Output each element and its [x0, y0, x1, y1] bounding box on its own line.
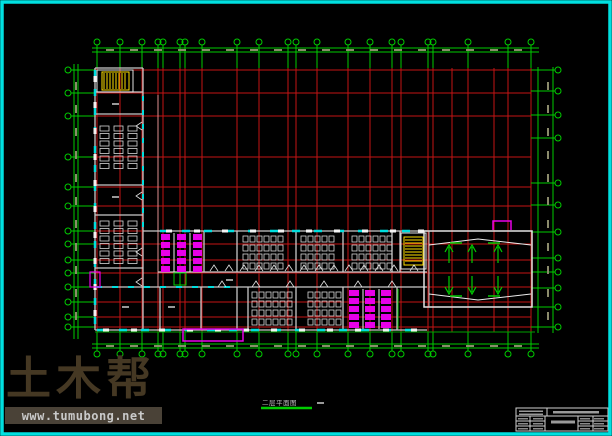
axis-bubble-top [139, 39, 145, 45]
title-block-text [594, 428, 604, 430]
dim-text-bottom [202, 345, 210, 347]
desk [100, 251, 109, 256]
dim-text-bottom [346, 345, 354, 347]
title-block-text [533, 418, 543, 420]
axis-bubble-bottom [285, 351, 291, 357]
desk [273, 292, 278, 298]
desk [271, 236, 276, 242]
desk [329, 310, 334, 316]
axis-bubble-bottom [199, 351, 205, 357]
dim-text-right [547, 197, 549, 205]
desk [359, 254, 364, 260]
desk [308, 310, 313, 316]
toilet-fixture [193, 234, 202, 240]
desk [100, 149, 109, 154]
stair-mid-frame [401, 233, 426, 269]
roof-ridge-bottom [429, 294, 531, 300]
dim-text-top [466, 49, 474, 51]
title-block-text [553, 411, 599, 414]
desk [259, 319, 264, 325]
desk [264, 254, 269, 260]
cad-drawing-preview: 二层平面图 土木帮 www.tumubong.net [0, 0, 612, 436]
desk [329, 319, 334, 325]
desk [271, 245, 276, 251]
axis-bubble-bottom [256, 351, 262, 357]
desk [128, 259, 137, 264]
axis-bubble-bottom [234, 351, 240, 357]
axis-bubble-top [256, 39, 262, 45]
dim-text-top [418, 49, 426, 51]
dim-text-left [75, 266, 77, 274]
toilet-fixture [193, 250, 202, 256]
dim-text-top [370, 49, 378, 51]
dim-text-left [75, 174, 77, 182]
desk [322, 236, 327, 242]
toilet-fixture [365, 290, 375, 296]
desk [301, 254, 306, 260]
toilet-fixture [161, 242, 170, 248]
desk [128, 141, 137, 146]
axis-bubble-top [367, 39, 373, 45]
desk [359, 236, 364, 242]
desk [322, 263, 327, 269]
watermark-brand: 土木帮 [6, 354, 156, 404]
desk [322, 310, 327, 316]
desk [373, 236, 378, 242]
axis-bubble-top [94, 39, 100, 45]
dim-text-bottom [418, 345, 426, 347]
title-block-text [594, 423, 604, 425]
axis-bubble-right [555, 255, 561, 261]
door-swing-marks [218, 281, 396, 287]
axis-bubble-right [555, 269, 561, 275]
desk [280, 319, 285, 325]
dim-text-top [298, 49, 306, 51]
dim-text-bottom [442, 345, 450, 347]
toilet-fixture [349, 322, 359, 328]
desk [100, 236, 109, 241]
desk [128, 221, 137, 226]
desk [308, 319, 313, 325]
toilet-fixture [161, 266, 170, 272]
toilet-fixture [161, 234, 170, 240]
title-block-text [580, 423, 590, 425]
desk [266, 319, 271, 325]
desk [329, 254, 334, 260]
desk [250, 236, 255, 242]
desk [264, 245, 269, 251]
desk [243, 236, 248, 242]
axis-bubble-top [314, 39, 320, 45]
desk [114, 149, 123, 154]
axis-bubble-top [199, 39, 205, 45]
axis-bubble-top [465, 39, 471, 45]
axis-bubble-left [65, 154, 71, 160]
axis-bubble-left [65, 314, 71, 320]
axis-bubble-right [555, 180, 561, 186]
axis-bubble-right [555, 135, 561, 141]
axis-bubble-right [555, 304, 561, 310]
desk [252, 292, 257, 298]
desk [322, 319, 327, 325]
axis-bubble-top [345, 39, 351, 45]
desk [308, 236, 313, 242]
dim-text-top [322, 49, 330, 51]
desk [128, 149, 137, 154]
dim-text-top [250, 49, 258, 51]
desk [100, 141, 109, 146]
dim-text-left [75, 82, 77, 90]
toilet-fixture [381, 290, 391, 296]
desk [322, 245, 327, 251]
desk [266, 310, 271, 316]
desk [250, 245, 255, 251]
axis-bubble-top [285, 39, 291, 45]
axis-bubble-bottom [528, 351, 534, 357]
desk [252, 310, 257, 316]
axis-bubble-right [555, 285, 561, 291]
dim-text-bottom [466, 345, 474, 347]
title-block-text [594, 418, 604, 420]
dim-text-right [547, 151, 549, 159]
toilet-fixture [349, 290, 359, 296]
axis-bubble-top [293, 39, 299, 45]
axis-bubble-top [234, 39, 240, 45]
axis-bubble-right [555, 229, 561, 235]
dim-text-left [75, 220, 77, 228]
axis-bubble-bottom [389, 351, 395, 357]
toilet-fixture [381, 322, 391, 328]
desk [128, 134, 137, 139]
plan-title-label: 二层平面图 [262, 399, 297, 407]
dim-text-bottom [394, 345, 402, 347]
axis-bubble-right [555, 67, 561, 73]
dim-text-right [547, 243, 549, 251]
desk [273, 310, 278, 316]
dim-text-top [154, 49, 162, 51]
desk [352, 236, 357, 242]
axis-bubble-top [505, 39, 511, 45]
desk [100, 221, 109, 226]
desk [259, 292, 264, 298]
dim-text-bottom [130, 345, 138, 347]
desk [128, 164, 137, 169]
dim-text-right [547, 174, 549, 182]
dim-text-top [490, 49, 498, 51]
room-label [112, 103, 119, 105]
axis-bubble-left [65, 257, 71, 263]
desk [264, 236, 269, 242]
desk [308, 245, 313, 251]
dim-text-bottom [250, 345, 258, 347]
axis-bubble-left [65, 184, 71, 190]
desk [336, 292, 341, 298]
desk [250, 263, 255, 269]
desk [128, 236, 137, 241]
axis-bubble-left [65, 299, 71, 305]
dim-text-bottom [154, 345, 162, 347]
toilet-fixture [365, 306, 375, 312]
dim-text-top [106, 49, 114, 51]
dim-text-left [75, 151, 77, 159]
axis-bubble-left [65, 241, 71, 247]
desk [114, 134, 123, 139]
axis-bubble-left [65, 284, 71, 290]
dim-text-left [75, 312, 77, 320]
desk [336, 319, 341, 325]
toilet-fixture [381, 314, 391, 320]
dim-text-top [130, 49, 138, 51]
desk [301, 245, 306, 251]
desk [280, 310, 285, 316]
toilet-fixture [177, 242, 186, 248]
desk [352, 245, 357, 251]
axis-bubble-bottom [367, 351, 373, 357]
dim-text-right [547, 266, 549, 274]
desk [387, 263, 392, 269]
dim-text-top [514, 49, 522, 51]
toilet-fixture [193, 258, 202, 264]
dim-text-right [547, 105, 549, 113]
room-label [112, 196, 119, 198]
toilet-fixture [365, 314, 375, 320]
desk [329, 236, 334, 242]
axis-bubble-bottom [345, 351, 351, 357]
desk [278, 245, 283, 251]
axis-bubble-left [65, 203, 71, 209]
title-block-text [518, 418, 528, 420]
desk [308, 263, 313, 269]
toilet-fixture [161, 258, 170, 264]
desk [114, 141, 123, 146]
dim-text-bottom [322, 345, 330, 347]
desk [271, 254, 276, 260]
axis-bubble-left [65, 270, 71, 276]
desk [278, 263, 283, 269]
desk [373, 254, 378, 260]
axis-bubble-bottom [398, 351, 404, 357]
desk [259, 310, 264, 316]
axis-bubble-right [555, 324, 561, 330]
dim-text-top [178, 49, 186, 51]
axis-bubble-top [117, 39, 123, 45]
toilet-fixture [177, 234, 186, 240]
desk [250, 254, 255, 260]
desk [380, 245, 385, 251]
desk [114, 251, 123, 256]
room-label [168, 306, 175, 308]
axis-bubble-bottom [465, 351, 471, 357]
toilet-fixture [177, 258, 186, 264]
desk [359, 245, 364, 251]
desk [114, 221, 123, 226]
dim-text-left [75, 128, 77, 136]
title-block-text [533, 423, 543, 425]
title-block-text [551, 421, 575, 424]
desk [100, 126, 109, 131]
dim-text-bottom [514, 345, 522, 347]
desk [278, 254, 283, 260]
desk [308, 292, 313, 298]
dim-text-left [75, 243, 77, 251]
toilet-fixture [381, 306, 391, 312]
title-block-text [518, 423, 528, 425]
axis-bubble-left [65, 67, 71, 73]
desk [128, 126, 137, 131]
dim-text-left [75, 197, 77, 205]
dim-text-top [346, 49, 354, 51]
title-block-text [519, 414, 543, 416]
desk [322, 254, 327, 260]
axis-bubble-left [65, 90, 71, 96]
axis-bubble-left [65, 113, 71, 119]
dim-text-top [226, 49, 234, 51]
dim-text-right [547, 82, 549, 90]
desk [329, 245, 334, 251]
axis-bubble-right [555, 88, 561, 94]
title-block-text [580, 418, 590, 420]
toilet-fixture [349, 306, 359, 312]
axis-bubble-top [398, 39, 404, 45]
dim-text-bottom [274, 345, 282, 347]
desk [100, 134, 109, 139]
dim-text-left [75, 105, 77, 113]
dim-text-top [202, 49, 210, 51]
dim-text-top [394, 49, 402, 51]
desk [322, 292, 327, 298]
axis-bubble-right [555, 202, 561, 208]
toilet-fixture [193, 266, 202, 272]
room-label [122, 306, 129, 308]
desk [243, 254, 248, 260]
axis-bubble-bottom [293, 351, 299, 357]
desk [100, 164, 109, 169]
dim-text-right [547, 220, 549, 228]
toilet-fixture [177, 250, 186, 256]
desk [329, 292, 334, 298]
axis-bubble-right [555, 112, 561, 118]
dim-text-bottom [370, 345, 378, 347]
room-label [317, 402, 324, 404]
desk [278, 236, 283, 242]
desk [352, 254, 357, 260]
toilet-fixture [381, 298, 391, 304]
desk [114, 236, 123, 241]
dim-text-bottom [178, 345, 186, 347]
axis-bubble-bottom [505, 351, 511, 357]
desk [114, 259, 123, 264]
toilet-fixture [349, 314, 359, 320]
dim-text-bottom [298, 345, 306, 347]
toilet-fixture [177, 266, 186, 272]
desk [114, 126, 123, 131]
dim-text-top [442, 49, 450, 51]
desk [352, 263, 357, 269]
title-block-text [580, 428, 590, 430]
title-block-text [533, 428, 543, 430]
watermark-url: www.tumubong.net [5, 407, 162, 424]
desk [380, 254, 385, 260]
desk [308, 254, 313, 260]
desk [243, 245, 248, 251]
desk [266, 292, 271, 298]
axis-bubble-bottom [314, 351, 320, 357]
desk [280, 292, 285, 298]
axis-bubble-left [65, 228, 71, 234]
roof-slope-arrow-down [445, 276, 502, 294]
desk [100, 259, 109, 264]
toilet-fixture [365, 298, 375, 304]
desk [373, 245, 378, 251]
toilet-fixture [365, 322, 375, 328]
desk [114, 164, 123, 169]
desk [264, 263, 269, 269]
axis-bubble-left [65, 324, 71, 330]
toilet-fixture [161, 250, 170, 256]
axis-bubble-top [389, 39, 395, 45]
dim-text-bottom [106, 345, 114, 347]
desk [380, 236, 385, 242]
desk [387, 236, 392, 242]
dim-text-right [547, 312, 549, 320]
dim-text-bottom [226, 345, 234, 347]
desk [301, 236, 306, 242]
desk [336, 310, 341, 316]
desk [387, 254, 392, 260]
desk [128, 251, 137, 256]
dim-text-left [75, 289, 77, 297]
dim-text-right [547, 128, 549, 136]
room-label [226, 279, 233, 281]
dim-text-bottom [490, 345, 498, 347]
dim-text-top [274, 49, 282, 51]
toilet-fixture [349, 298, 359, 304]
desk [273, 319, 278, 325]
desk [387, 245, 392, 251]
dim-text-right [547, 289, 549, 297]
title-block-text [518, 428, 528, 430]
desk [252, 319, 257, 325]
toilet-fixture [193, 242, 202, 248]
axis-bubble-top [528, 39, 534, 45]
title-block-text [519, 411, 543, 413]
